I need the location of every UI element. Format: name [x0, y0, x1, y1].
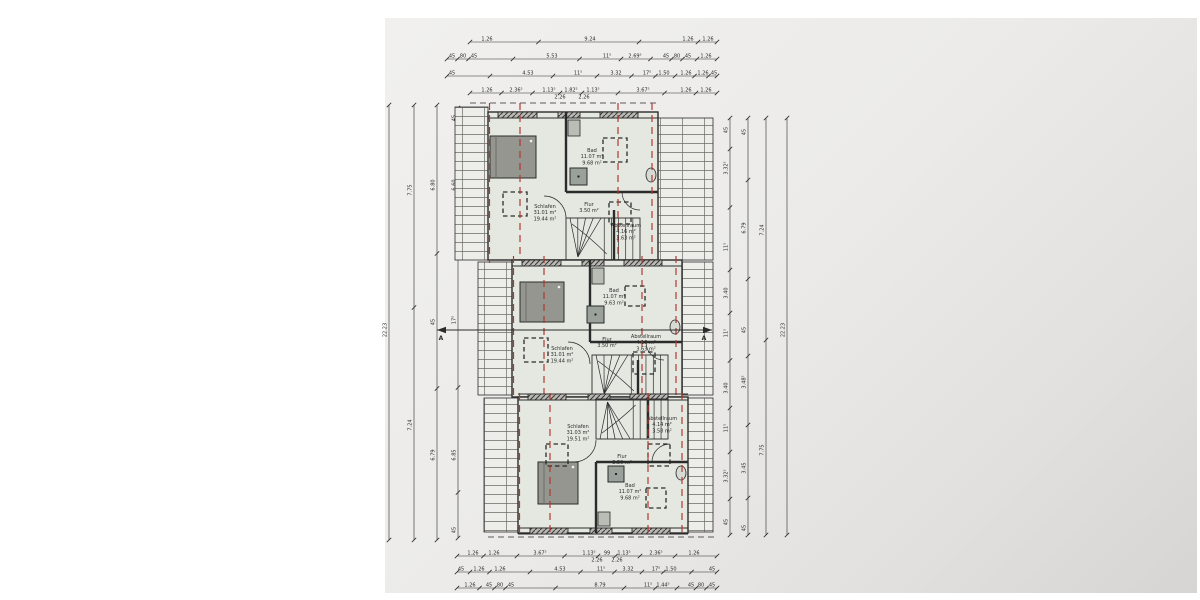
dim-label: 11⁵	[644, 583, 652, 589]
room-label: 19.44 m²	[551, 358, 574, 364]
section-label: A	[702, 335, 707, 342]
dim-label: 1.13⁵	[586, 88, 599, 94]
room-label: Abstellraum	[647, 416, 677, 422]
room-label: 3.58 m²	[652, 428, 672, 434]
dim-label: 45	[486, 583, 492, 589]
dim-label: 45	[724, 127, 730, 133]
wall-hatch-segment	[498, 112, 537, 118]
dim-label: 45	[688, 583, 694, 589]
section-arrow-left	[437, 327, 446, 333]
room-label: Flur	[617, 454, 627, 460]
roof-hatch	[658, 118, 713, 260]
room-label: Abstellraum	[631, 334, 661, 340]
dim-label: 3.40	[724, 382, 730, 393]
room-label: Schlafen	[534, 204, 556, 210]
room-label: Schlafen	[551, 346, 573, 352]
dim-label: 1.26	[467, 551, 478, 557]
dim-label: 22.23	[781, 323, 787, 337]
dim-label: 11⁵	[724, 424, 730, 432]
dim-label: 80	[698, 583, 704, 589]
dim-label: 1.26	[481, 37, 492, 43]
roof-hatch	[455, 107, 488, 260]
room-label: 19.51 m²	[567, 436, 590, 442]
dim-label: 45	[452, 527, 458, 533]
roof-hatch	[484, 398, 518, 532]
dim-label: 45	[431, 319, 437, 325]
room-label: 4.14 m²	[652, 422, 672, 428]
dim-label: 1.26	[464, 583, 475, 589]
bed-pillow-dot	[530, 140, 533, 143]
dim-label: 1.26	[700, 54, 711, 60]
floor-plan-drawing: 1.269.241.261.264580455.5311⁵2.69⁵458045…	[0, 0, 1200, 600]
dim-label: 45	[685, 54, 691, 60]
dim-label: 99	[604, 551, 610, 557]
wall-hatch-segment	[632, 528, 670, 534]
screen-photo: 1.269.241.261.264580455.5311⁵2.69⁵458045…	[0, 0, 1200, 600]
dim-label: 11⁵	[603, 54, 611, 60]
dim-label: 45	[742, 525, 748, 531]
room-label: 4.16 m²	[616, 229, 636, 235]
dim-label: 1.26	[700, 88, 711, 94]
room-label: 9.68 m²	[620, 495, 640, 501]
bed-icon	[490, 136, 536, 178]
roof-hatch	[478, 262, 512, 395]
room-label: 11.07 m²	[619, 489, 642, 495]
wc-icon	[646, 168, 656, 182]
bed-pillow-dot	[558, 286, 561, 289]
dim-label: 1.13⁵	[617, 551, 630, 557]
dim-label: 1.26	[688, 551, 699, 557]
dim-label: 7.24	[760, 224, 766, 235]
dim-label: 1.82⁵	[564, 88, 577, 94]
room-label: Bad	[609, 288, 619, 294]
room-label: Abstellraum	[611, 223, 641, 229]
room-label: 31.03 m²	[567, 430, 590, 436]
dim-label: 1.26	[481, 88, 492, 94]
roof-hatch	[682, 262, 713, 395]
dim-label: 2.36⁵	[649, 551, 662, 557]
room-label: 3.50 m²	[579, 208, 599, 214]
dim-label: 3.67⁵	[636, 88, 649, 94]
wall-hatch-segment	[528, 394, 566, 400]
sink-icon	[598, 512, 610, 526]
dim-label: 3.67⁵	[533, 551, 546, 557]
room-label: Flur	[602, 337, 612, 343]
room-label: Bad	[625, 483, 635, 489]
dim-label: 11⁵	[597, 567, 605, 573]
dim-label: 5.53	[546, 54, 557, 60]
wall-hatch-segment	[558, 112, 580, 118]
dim-label: 1.26	[488, 551, 499, 557]
room-label: 9.68 m²	[582, 160, 602, 166]
dim-label: 2.36⁵	[509, 88, 522, 94]
dim-label: 45	[724, 519, 730, 525]
dim-label: 45	[508, 583, 514, 589]
wall-hatch-segment	[530, 528, 568, 534]
dim-label: 80	[460, 54, 466, 60]
dim-label: 6.79	[431, 449, 437, 460]
room-label: 4.16 m²	[636, 340, 656, 346]
dim-label: 7.75	[760, 444, 766, 455]
dim-label: 7.24	[408, 419, 414, 430]
shower-drain-dot	[594, 313, 596, 315]
bed-icon	[520, 282, 564, 322]
dim-label: 45	[458, 567, 464, 573]
dim-label: 4.53	[522, 71, 533, 77]
dim-label: 3.32	[622, 567, 633, 573]
room-label: Flur	[584, 202, 594, 208]
dim-label: 1.26	[494, 567, 505, 573]
dim-label: 17⁵	[652, 567, 660, 573]
wc-icon	[670, 320, 680, 334]
roof-hatch	[688, 398, 713, 532]
dim-label: 45	[449, 71, 455, 77]
dim-label: 3.45	[742, 462, 748, 473]
dim-label: 45	[663, 54, 669, 60]
dim-label: 1.26	[697, 71, 708, 77]
room-label: Schlafen	[567, 424, 589, 430]
dim-label: 80	[497, 583, 503, 589]
dim-label: 1.26	[680, 71, 691, 77]
dim-label: 11⁵	[724, 243, 730, 251]
shower-drain-dot	[615, 473, 617, 475]
room-label: 11.07 m²	[603, 294, 626, 300]
sink-icon	[592, 268, 604, 284]
dim-label: 1.50	[665, 567, 676, 573]
dim-label: 1.13⁵	[542, 88, 555, 94]
wall-hatch-segment	[522, 260, 561, 266]
wall-hatch-segment	[582, 260, 604, 266]
dim-label: 1.26	[473, 567, 484, 573]
dim-label: 45	[711, 71, 717, 77]
dim-label: 45	[449, 54, 455, 60]
room-label: 3.63 m²	[636, 346, 656, 352]
shower-drain-dot	[577, 175, 579, 177]
section-label: A	[439, 335, 444, 342]
room-label: 9.63 m²	[604, 300, 624, 306]
dim-label: 3.48⁵	[742, 375, 748, 388]
dim-label: 2.69⁵	[628, 54, 641, 60]
room-label: 3.50 m²	[597, 343, 617, 349]
dim-label: 1.50	[658, 71, 669, 77]
room-label: 11.07 m²	[581, 154, 604, 160]
dim-label: 2.26	[611, 558, 622, 564]
dim-label: 1.26	[680, 88, 691, 94]
dim-label: 2.26	[591, 558, 602, 564]
dim-label: 3.40	[724, 287, 730, 298]
dim-label: 45	[471, 54, 477, 60]
dim-label: 8.79	[594, 583, 605, 589]
wc-icon	[676, 466, 686, 480]
dim-label: 11⁵	[724, 329, 730, 337]
wall-hatch-segment	[600, 112, 638, 118]
dim-label: 7.75	[408, 184, 414, 195]
dim-label: 45	[742, 327, 748, 333]
dim-label: 9.24	[584, 37, 595, 43]
dim-label: 3.32⁵	[724, 469, 730, 482]
room-label: 31.01 m²	[534, 210, 557, 216]
dim-label: 45	[709, 583, 715, 589]
dim-label: 22.23	[383, 323, 389, 337]
dim-label: 4.53	[554, 567, 565, 573]
dim-label: 17⁵	[452, 316, 458, 324]
dim-label: 11⁵	[574, 71, 582, 77]
dim-label: 1.26	[702, 37, 713, 43]
dim-label: 6.85	[452, 449, 458, 460]
dim-label: 6.80	[431, 179, 437, 190]
wall-hatch-segment	[590, 528, 612, 534]
room-label: Bad	[587, 148, 597, 154]
dim-label: 1.13⁵	[582, 551, 595, 557]
dim-label: 80	[674, 54, 680, 60]
dim-label: 17⁵	[643, 71, 651, 77]
bed-pillow-dot	[572, 466, 575, 469]
dim-label: 3.32	[610, 71, 621, 77]
wall-hatch-segment	[624, 260, 662, 266]
dim-label: 45	[709, 567, 715, 573]
room-label: 19.44 m²	[534, 216, 557, 222]
dim-label: 1.26	[682, 37, 693, 43]
room-label: 31.01 m²	[551, 352, 574, 358]
dim-label: 2.26	[554, 95, 565, 101]
room-label: 3.63 m²	[616, 235, 636, 241]
dim-label: 45	[742, 129, 748, 135]
dim-label: 3.32⁵	[724, 161, 730, 174]
sink-icon	[568, 120, 580, 136]
dim-label: 1.44⁵	[656, 583, 669, 589]
dim-label: 6.79	[742, 222, 748, 233]
dim-label: 2.26	[578, 95, 589, 101]
room-label: 3.50 m²	[612, 460, 632, 466]
